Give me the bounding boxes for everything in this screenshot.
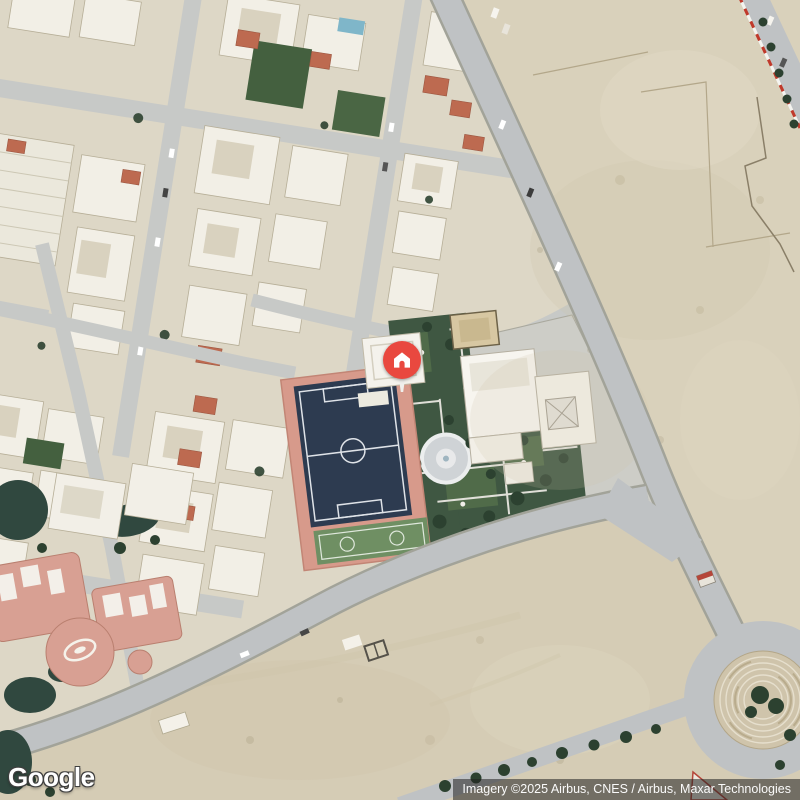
roundabout xyxy=(699,636,800,770)
satellite-imagery[interactable] xyxy=(0,0,800,800)
google-logo[interactable]: Google xyxy=(8,762,95,793)
map-viewport[interactable]: Google Imagery ©2025 Airbus, CNES / Airb… xyxy=(0,0,800,800)
soccer-field xyxy=(281,364,431,570)
property-location-marker[interactable] xyxy=(383,341,421,379)
imagery-attribution: Imagery ©2025 Airbus, CNES / Airbus, Max… xyxy=(453,779,800,800)
home-icon xyxy=(392,350,412,370)
marker-circle[interactable] xyxy=(383,341,421,379)
